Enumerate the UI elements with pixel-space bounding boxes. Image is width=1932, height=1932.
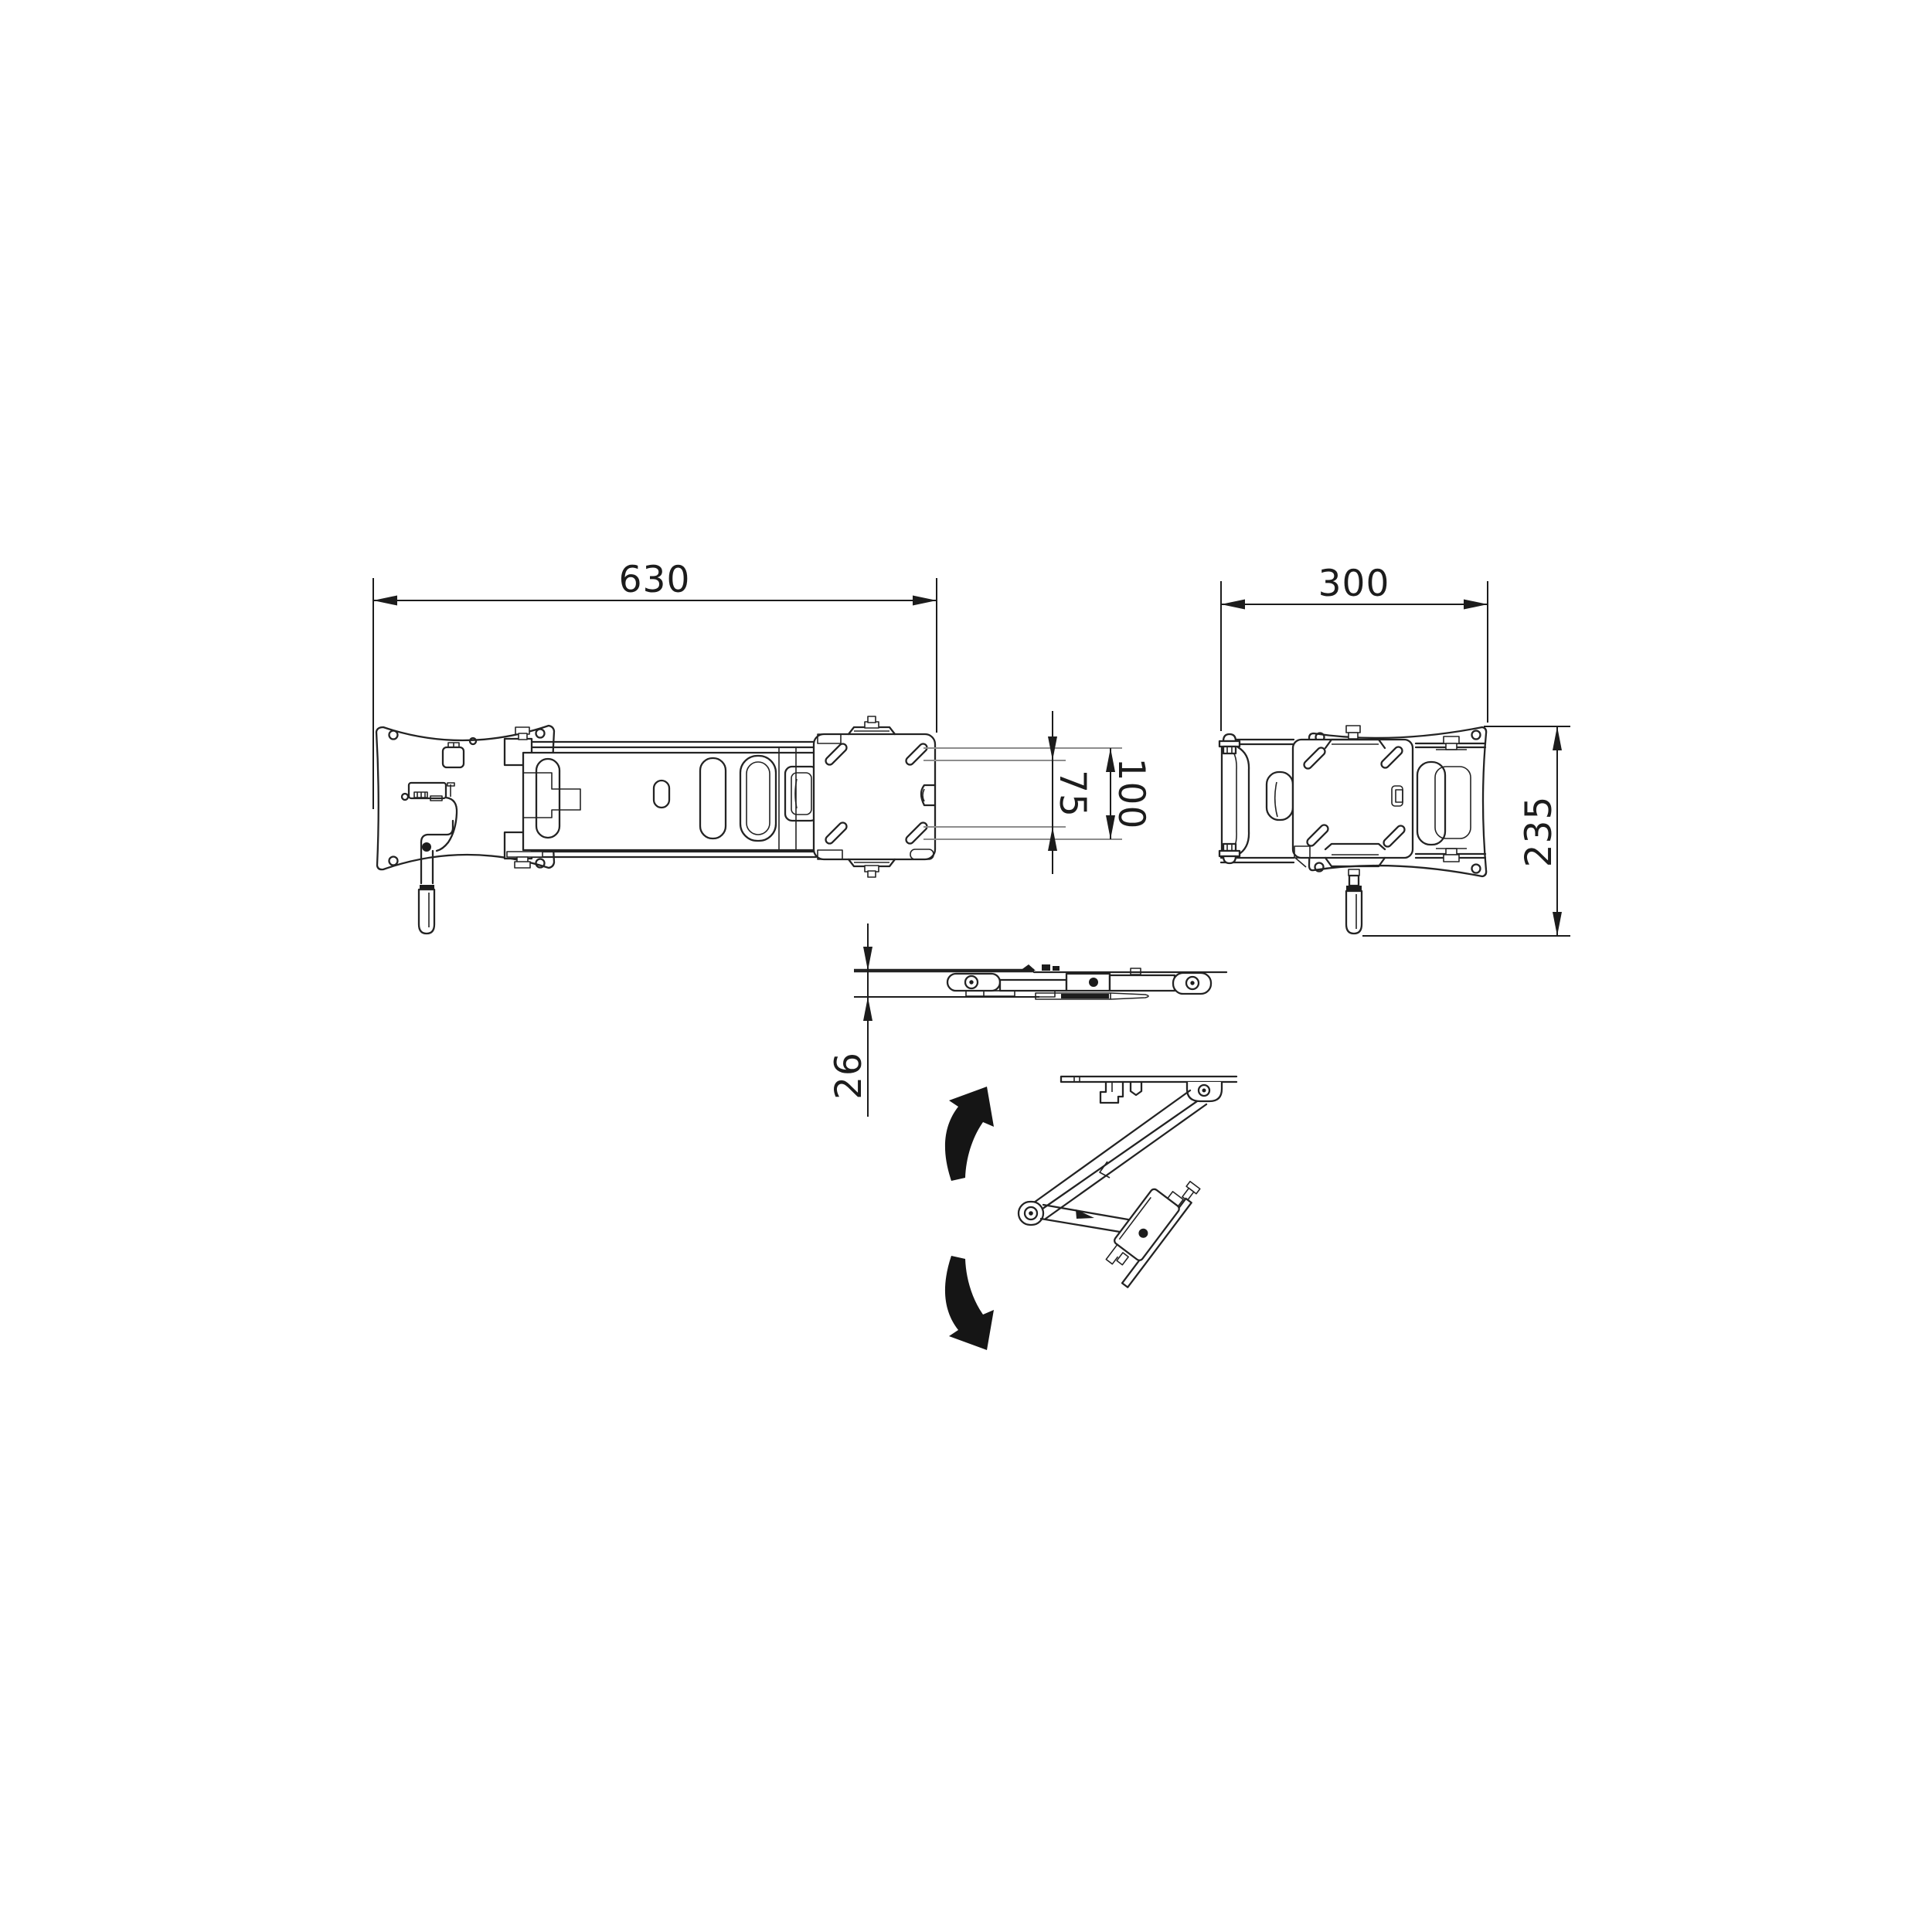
rotate-down-arrow-icon [945,1256,994,1350]
dim-profile-depth: 26 [828,923,1039,1117]
dim-label-vesa-outer: 100 [1110,758,1152,830]
drawing-page: 630 [0,0,1932,1932]
dim-label-compact-height: 235 [1518,796,1560,868]
drawing-canvas: 630 [0,0,1932,1932]
vesa-plate-extended [814,716,935,877]
dim-label-vesa-inner: 75 [1051,770,1094,818]
dim-label-compact-width: 300 [1318,563,1390,605]
rotate-up-arrow-icon [945,1087,994,1181]
dim-compact-width: 300 [1221,563,1488,731]
wall-plate-tilted [1097,1166,1202,1287]
dim-label-profile-depth: 26 [828,1052,870,1100]
dim-vesa-patterns: 75 100 [923,711,1152,874]
vesa-plate-folded [1293,726,1413,934]
view-side-tilted [945,1077,1236,1350]
wall-bracket-edge [1219,734,1294,863]
view-folded-front [1219,726,1486,934]
view-side-profile-flat [854,964,1226,999]
view-extended-front [376,716,935,934]
dim-label-extended-width: 630 [619,559,691,601]
